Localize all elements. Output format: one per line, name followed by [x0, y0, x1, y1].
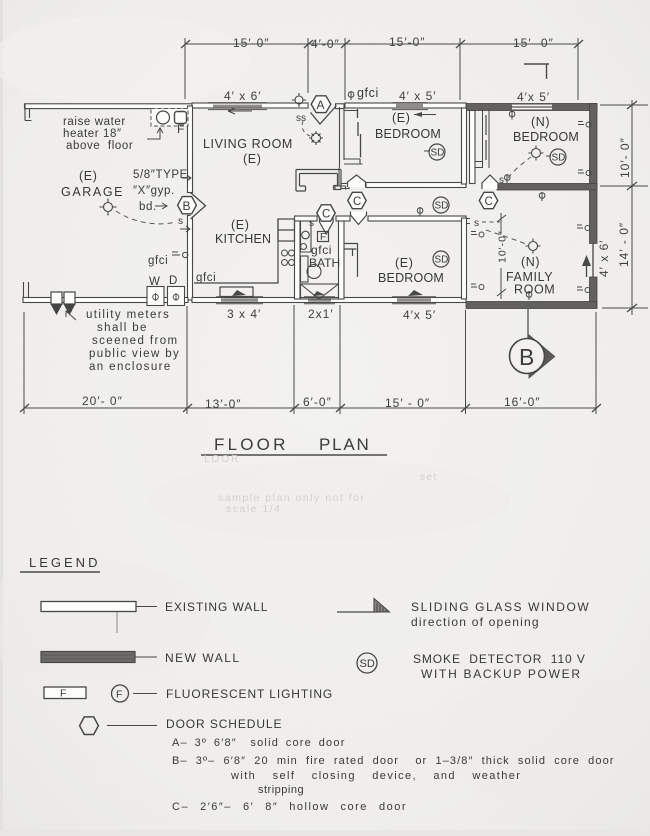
svg-text:raise water: raise water — [63, 116, 126, 128]
svg-text:SMOKE DETECTOR 110 V: SMOKE DETECTOR 110 V — [413, 652, 586, 666]
svg-text:A: A — [317, 98, 326, 112]
svg-text:gfci: gfci — [196, 272, 216, 284]
svg-text:(E): (E) — [392, 111, 410, 125]
svg-text:″X″gyp.: ″X″gyp. — [133, 185, 175, 197]
svg-text:SD: SD — [435, 255, 449, 266]
svg-text:utility meters: utility meters — [86, 309, 170, 321]
svg-text:10′-0″: 10′-0″ — [497, 230, 509, 263]
svg-text:(E): (E) — [231, 218, 249, 232]
svg-text:GARAGE: GARAGE — [61, 185, 124, 199]
svg-text:15′ - 0″: 15′ - 0″ — [385, 396, 430, 410]
svg-text:20′- 0″: 20′- 0″ — [82, 394, 123, 408]
svg-text:ROOM: ROOM — [514, 283, 555, 297]
svg-text:5/8″TYPE: 5/8″TYPE — [133, 169, 188, 181]
svg-text:6′-0″: 6′-0″ — [303, 395, 332, 409]
svg-text:LEGEND: LEGEND — [29, 555, 100, 570]
svg-text:set: set — [420, 472, 438, 483]
svg-text:SD: SD — [360, 658, 375, 670]
svg-text:NEW WALL: NEW WALL — [165, 651, 241, 665]
svg-text:F: F — [320, 232, 326, 243]
svg-text:gfci: gfci — [148, 255, 168, 267]
svg-text:A– 3º 6′8″ solid core door: A– 3º 6′8″ solid core door — [172, 737, 346, 749]
svg-text:bd.: bd. — [139, 201, 157, 213]
svg-text:sceened from: sceened from — [92, 335, 178, 347]
svg-text:PLAN: PLAN — [319, 435, 371, 454]
svg-text:4′ x 6′: 4′ x 6′ — [224, 89, 262, 103]
svg-text:SLIDING GLASS WINDOW: SLIDING GLASS WINDOW — [411, 600, 590, 614]
svg-text:EXISTING WALL: EXISTING WALL — [165, 600, 268, 614]
svg-text:with self closing device, and: with self closing device, and weather — [230, 770, 521, 782]
svg-text:heater 18″: heater 18″ — [63, 128, 122, 140]
svg-text:B– 3º– 6′8″ 20 min fire rated: B– 3º– 6′8″ 20 min fire rated door or 1–… — [172, 755, 615, 767]
svg-text:SD: SD — [435, 201, 449, 212]
svg-text:SD: SD — [552, 153, 566, 164]
svg-text:BEDROOM: BEDROOM — [513, 130, 579, 144]
svg-text:F: F — [116, 689, 122, 701]
svg-text:14′ - 0″: 14′ - 0″ — [617, 222, 631, 267]
svg-text:direction of opening: direction of opening — [411, 615, 540, 629]
svg-text:B: B — [519, 344, 534, 370]
svg-text:FLOOR: FLOOR — [214, 435, 289, 454]
svg-text:public view by: public view by — [89, 348, 180, 360]
svg-text:(N): (N) — [521, 255, 540, 269]
svg-text:an enclosure: an enclosure — [89, 361, 172, 373]
svg-text:16′-0″: 16′-0″ — [504, 395, 541, 409]
svg-text:FLUORESCENT LIGHTING: FLUORESCENT LIGHTING — [166, 687, 333, 701]
svg-text:10′- 0″: 10′- 0″ — [618, 137, 632, 178]
svg-text:s: s — [474, 218, 479, 229]
svg-text:C: C — [322, 208, 331, 220]
svg-text:LIVING ROOM: LIVING ROOM — [203, 137, 293, 151]
svg-text:15′-0″: 15′-0″ — [389, 35, 426, 49]
svg-text:shall be: shall be — [97, 322, 148, 334]
svg-text:gfci: gfci — [357, 86, 379, 100]
svg-text:F: F — [60, 688, 66, 700]
svg-text:WITH BACKUP POWER: WITH BACKUP POWER — [421, 667, 582, 681]
svg-text:LOOR: LOOR — [204, 454, 240, 465]
svg-text:2x1′: 2x1′ — [308, 307, 334, 321]
svg-text:B: B — [183, 199, 192, 213]
svg-text:3 x 4′: 3 x 4′ — [227, 307, 261, 321]
svg-text:DOOR SCHEDULE: DOOR SCHEDULE — [166, 717, 282, 731]
svg-text:4′x 5′: 4′x 5′ — [517, 90, 550, 104]
svg-text:F: F — [177, 122, 185, 136]
svg-text:(E): (E) — [395, 256, 413, 270]
svg-text:SD: SD — [431, 148, 445, 159]
svg-text:D: D — [169, 275, 178, 287]
svg-text:BEDROOM: BEDROOM — [378, 271, 444, 285]
svg-text:s: s — [499, 175, 504, 186]
svg-text:C– 2′6″– 6′ 8″ hollow core doo: C– 2′6″– 6′ 8″ hollow core door — [172, 801, 407, 813]
svg-text:s: s — [178, 216, 183, 227]
svg-text:15′-0″: 15′-0″ — [233, 36, 270, 50]
svg-text:ss: ss — [296, 113, 306, 124]
svg-text:4′-0″: 4′-0″ — [311, 37, 340, 51]
svg-text:above floor: above floor — [66, 140, 133, 152]
svg-text:(N): (N) — [531, 115, 550, 129]
svg-text:4′ x 5′: 4′ x 5′ — [399, 89, 437, 103]
svg-text:4′x 5′: 4′x 5′ — [403, 308, 436, 322]
svg-text:(E): (E) — [243, 152, 261, 166]
svg-text:(E): (E) — [79, 169, 97, 183]
svg-text:C: C — [485, 196, 494, 208]
svg-text:4′ x 6′: 4′ x 6′ — [597, 239, 611, 277]
svg-text:BEDROOM: BEDROOM — [375, 127, 441, 141]
svg-text:15′- 0″: 15′- 0″ — [513, 36, 554, 50]
svg-text:13′-0″: 13′-0″ — [205, 397, 242, 411]
svg-text:gfci: gfci — [311, 243, 332, 257]
svg-text:BATH: BATH — [309, 256, 340, 270]
svg-text:stripping: stripping — [258, 784, 304, 796]
svg-text:C: C — [353, 196, 362, 208]
svg-text:scale 1/4: scale 1/4 — [226, 503, 282, 515]
svg-text:KITCHEN: KITCHEN — [215, 232, 271, 246]
